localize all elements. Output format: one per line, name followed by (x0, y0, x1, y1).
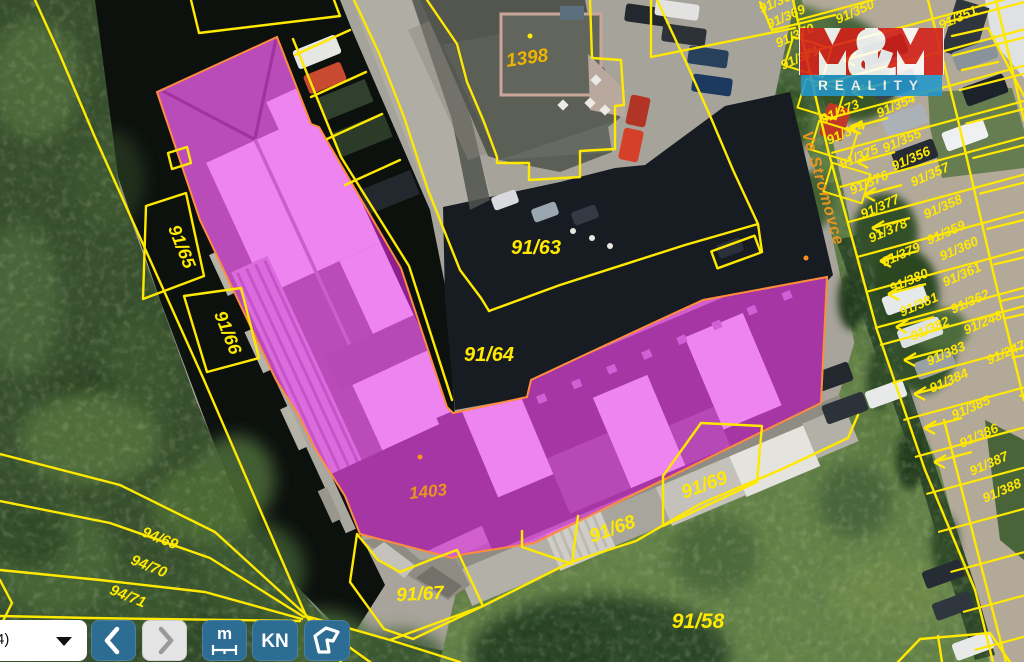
svg-text:1403: 1403 (408, 480, 448, 503)
svg-text:m: m (217, 624, 232, 643)
svg-text:91/64: 91/64 (464, 344, 514, 366)
svg-text:91/63: 91/63 (511, 237, 561, 259)
svg-text:91/67: 91/67 (396, 583, 446, 607)
svg-text:KN: KN (261, 631, 288, 652)
svg-text:91/58: 91/58 (672, 610, 725, 633)
